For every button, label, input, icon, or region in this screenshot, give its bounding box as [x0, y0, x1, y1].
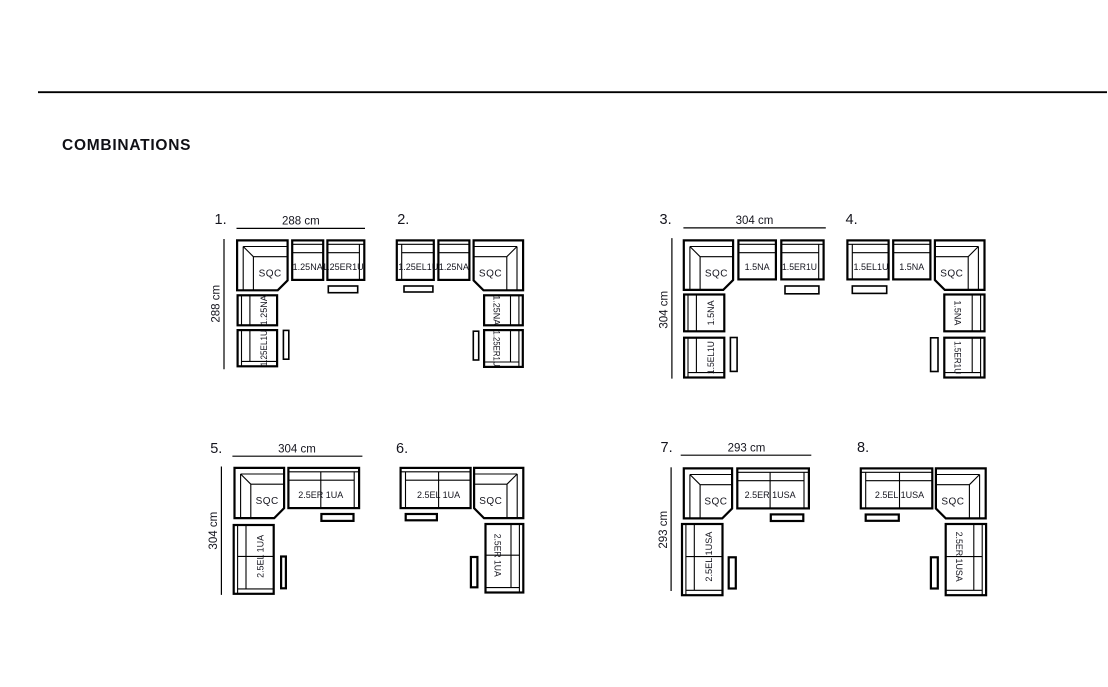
svg-text:2.5EL 1UA: 2.5EL 1UA [417, 490, 460, 500]
svg-text:1.25NA: 1.25NA [259, 295, 269, 325]
svg-text:2.5EL 1UA: 2.5EL 1UA [255, 535, 265, 578]
svg-text:1.5EL1U: 1.5EL1U [854, 262, 889, 272]
svg-text:288 cm: 288 cm [282, 216, 320, 228]
svg-text:1.25EL1U: 1.25EL1U [398, 262, 438, 272]
svg-text:2.5ER 1USA: 2.5ER 1USA [745, 490, 796, 500]
svg-text:1.5NA: 1.5NA [745, 262, 770, 272]
svg-text:SQC: SQC [704, 497, 727, 508]
svg-text:1.5ER1U: 1.5ER1U [782, 262, 817, 272]
svg-text:SQC: SQC [705, 268, 728, 279]
svg-text:1.25NA: 1.25NA [439, 262, 469, 272]
svg-text:6.: 6. [396, 441, 408, 457]
svg-text:COMBINATIONS: COMBINATIONS [62, 137, 191, 154]
svg-text:293 cm: 293 cm [728, 442, 766, 454]
svg-text:1.5EL1U: 1.5EL1U [706, 341, 716, 374]
svg-text:3.: 3. [660, 212, 672, 228]
svg-text:2.5EL 1USA: 2.5EL 1USA [704, 532, 714, 582]
svg-text:1.5ER1U: 1.5ER1U [953, 341, 963, 374]
svg-text:2.5EL 1USA: 2.5EL 1USA [875, 490, 924, 500]
svg-text:304 cm: 304 cm [278, 443, 316, 455]
svg-text:1.25EL1U: 1.25EL1U [259, 330, 269, 366]
svg-text:SQC: SQC [256, 496, 279, 507]
svg-text:1.25NA: 1.25NA [492, 295, 502, 325]
svg-text:2.5ER 1UA: 2.5ER 1UA [298, 490, 343, 500]
svg-text:SQC: SQC [479, 269, 502, 280]
svg-text:1.25ER1U: 1.25ER1U [322, 262, 364, 272]
svg-text:1.25ER1U: 1.25ER1U [492, 331, 502, 367]
svg-text:4.: 4. [846, 212, 858, 228]
svg-text:2.5ER 1UA: 2.5ER 1UA [493, 534, 503, 577]
svg-text:304 cm: 304 cm [208, 512, 220, 550]
svg-text:304 cm: 304 cm [659, 291, 671, 329]
svg-text:1.: 1. [215, 212, 227, 228]
svg-text:SQC: SQC [941, 497, 964, 508]
svg-text:304 cm: 304 cm [736, 215, 774, 227]
svg-text:SQC: SQC [940, 268, 963, 279]
svg-text:288 cm: 288 cm [211, 285, 223, 323]
svg-text:1.5NA: 1.5NA [953, 300, 963, 325]
svg-text:1.5NA: 1.5NA [899, 262, 924, 272]
svg-text:2.5ER 1USA: 2.5ER 1USA [954, 532, 964, 582]
svg-text:SQC: SQC [259, 269, 282, 280]
svg-text:1.5NA: 1.5NA [706, 300, 716, 325]
svg-text:2.: 2. [397, 212, 409, 228]
svg-text:5.: 5. [210, 441, 222, 457]
svg-text:SQC: SQC [479, 496, 502, 507]
svg-text:293 cm: 293 cm [658, 511, 670, 549]
svg-text:7.: 7. [661, 440, 673, 456]
svg-text:1.25NA: 1.25NA [293, 262, 323, 272]
svg-text:8.: 8. [857, 440, 869, 456]
